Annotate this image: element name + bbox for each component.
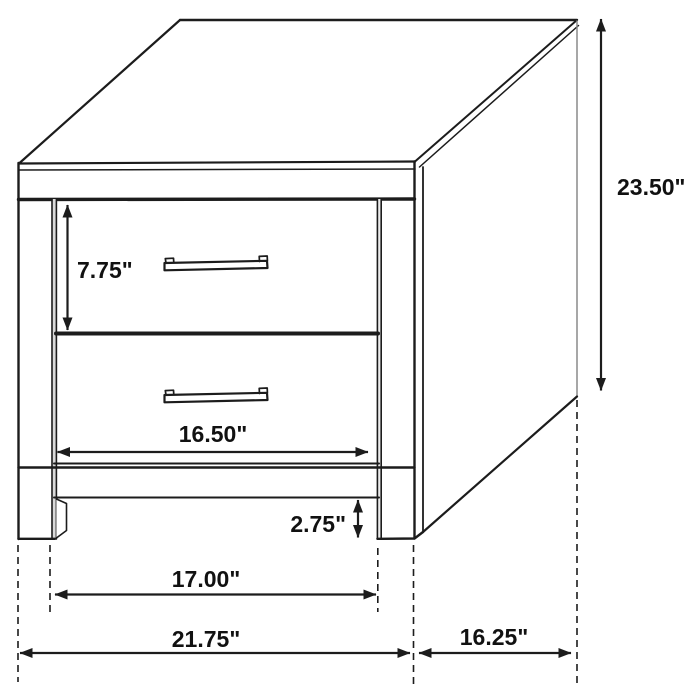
- nightstand-dimension-diagram: 7.75" 23.50" 16.50" 2.75" 17.00" 21.75" …: [0, 0, 700, 700]
- diagram-canvas: 7.75" 23.50" 16.50" 2.75" 17.00" 21.75" …: [0, 0, 700, 700]
- between-legs-label: 17.00": [172, 566, 240, 592]
- top-front-inner-edge: [19, 169, 415, 170]
- left-leg-inner-face: [56, 499, 66, 538]
- overall-height-label: 23.50": [617, 174, 685, 200]
- top-rail-bottom-edge: [19, 199, 415, 200]
- leg-clearance-label: 2.75": [290, 511, 346, 537]
- left-stile-core: [53, 199, 56, 539]
- depth-label: 16.25": [460, 624, 528, 650]
- drawer-height-label: 7.75": [77, 257, 133, 283]
- overall-width-label: 21.75": [172, 626, 240, 652]
- right-stile-core: [378, 199, 381, 539]
- drawer-width-label: 16.50": [179, 421, 247, 447]
